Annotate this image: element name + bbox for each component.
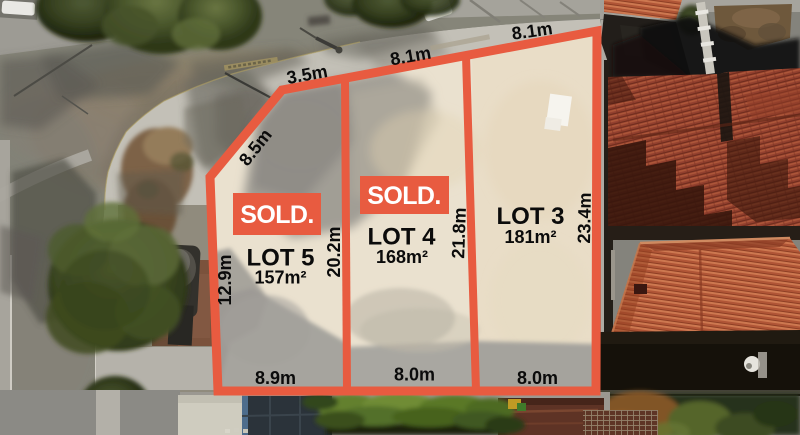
svg-text:168m²: 168m² [376,247,428,267]
svg-text:157m²: 157m² [254,268,306,288]
svg-text:21.8m: 21.8m [448,207,470,259]
svg-text:181m²: 181m² [504,227,556,247]
svg-text:SOLD.: SOLD. [240,201,313,229]
svg-text:LOT 3: LOT 3 [496,203,564,230]
svg-text:20.2m: 20.2m [324,226,344,277]
svg-text:12.9m: 12.9m [215,254,235,305]
svg-text:23.4m: 23.4m [574,192,595,243]
svg-text:8.9m: 8.9m [255,368,296,388]
svg-text:SOLD.: SOLD. [367,182,440,210]
svg-text:8.0m: 8.0m [517,368,558,388]
svg-text:8.0m: 8.0m [394,365,435,385]
